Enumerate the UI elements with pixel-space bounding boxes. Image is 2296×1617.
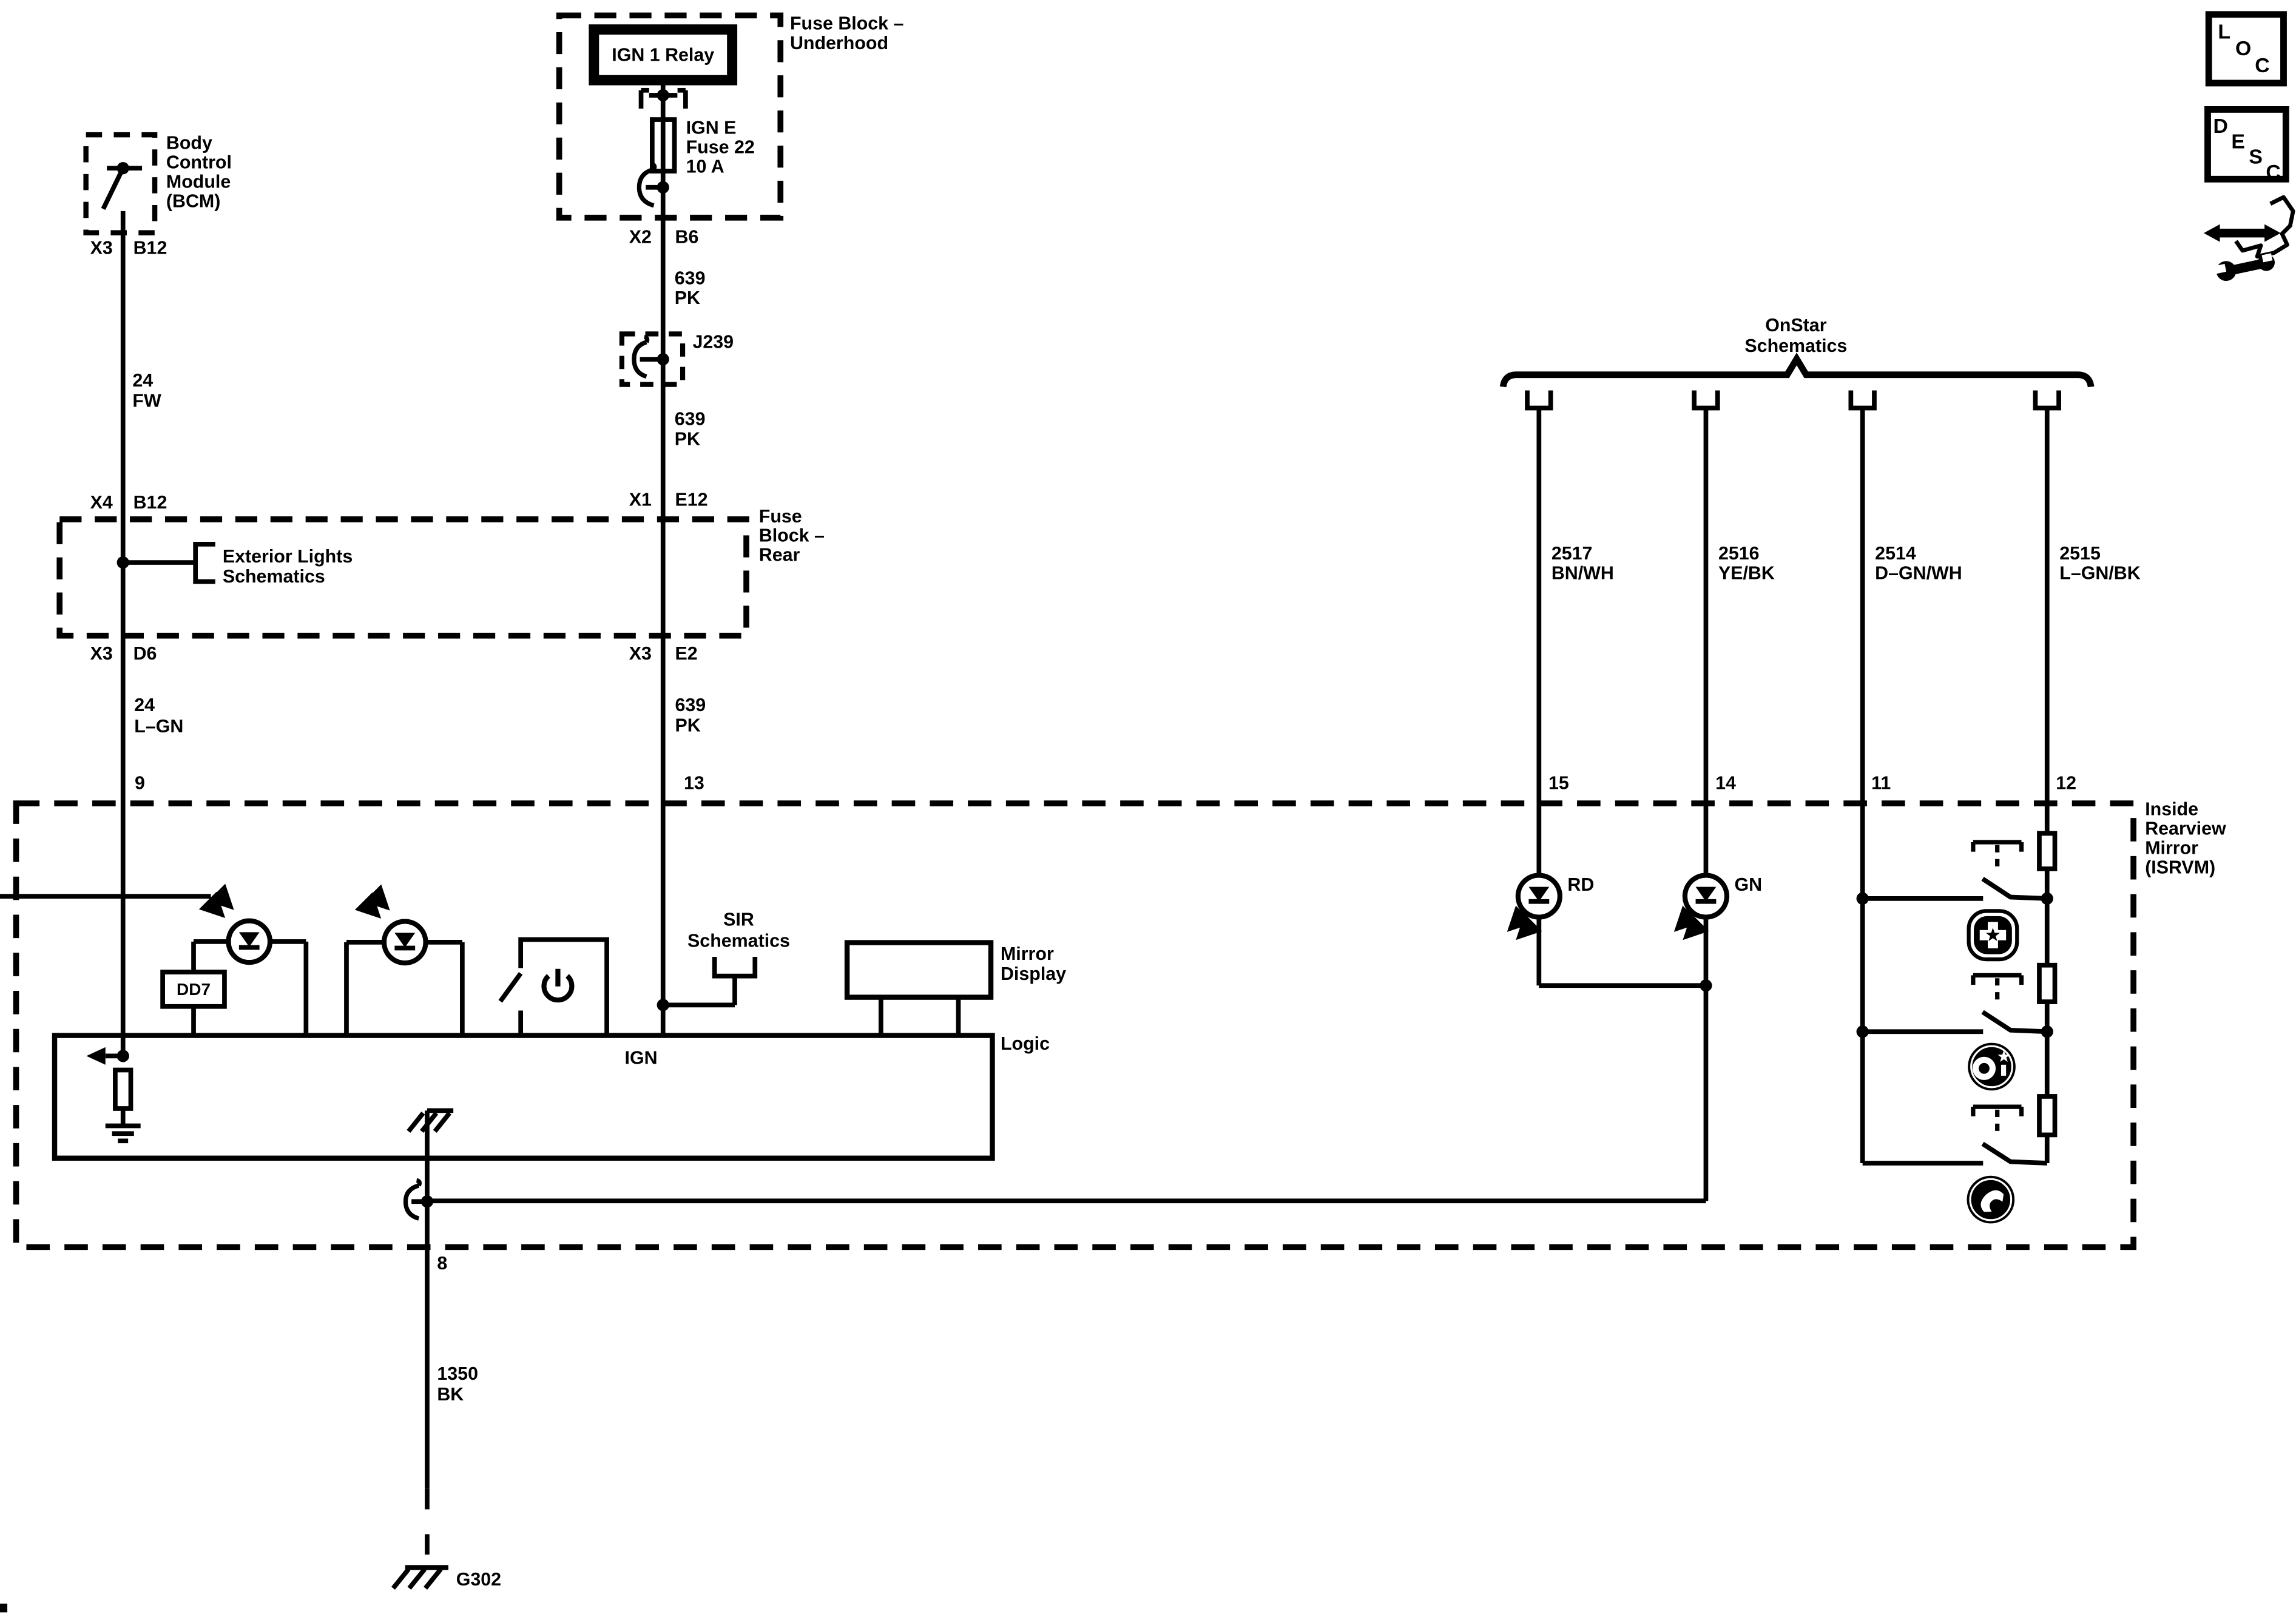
loc-letter-l: L xyxy=(2218,20,2230,43)
switch-blade-1 xyxy=(1983,879,2047,899)
isrvm-label-line1: Inside xyxy=(2145,799,2198,820)
fuse-label-line3: 10 A xyxy=(686,157,724,177)
loc-letter-c: C xyxy=(2255,54,2269,77)
bcm-terminal-id: B12 xyxy=(133,238,167,258)
term-e12: E12 xyxy=(675,489,708,510)
conn-x1: X1 xyxy=(629,489,652,510)
splice-j239: J239 xyxy=(622,332,734,385)
schematic-ref-bracket xyxy=(195,544,215,582)
gnd-wire-color: BK xyxy=(437,1384,464,1405)
term-d6: D6 xyxy=(133,643,157,664)
wire-639-color-1: PK xyxy=(675,288,700,308)
pin-8: 8 xyxy=(437,1253,447,1274)
terminal-u-4 xyxy=(2035,391,2059,408)
fuse-label-line2: Fuse 22 xyxy=(686,137,755,157)
j239-clip-icon xyxy=(634,337,647,376)
power-icon xyxy=(544,969,572,1000)
underhood-label-line2: Underhood xyxy=(790,33,888,53)
rear-label-line2: Block – xyxy=(759,525,825,546)
fuse-label-line1: IGN E xyxy=(686,117,737,138)
mirror-display-box xyxy=(847,943,991,998)
sir-bracket xyxy=(715,957,755,976)
exterior-lights-ref-line2[interactable]: Schematics xyxy=(223,566,325,587)
scan-artifact-dot xyxy=(0,1604,7,1612)
resistor-icon xyxy=(115,1070,131,1109)
sir-ref-line2[interactable]: Schematics xyxy=(687,930,790,951)
isrvm-dashed-box xyxy=(16,803,2134,1247)
onstar-title-line2[interactable]: Schematics xyxy=(1744,336,1847,356)
mirror-display-label-line2: Display xyxy=(1001,964,1066,984)
pin-15: 15 xyxy=(1548,772,1569,793)
rear-label-line3: Rear xyxy=(759,544,800,565)
term-b6: B6 xyxy=(675,226,699,247)
isrvm-label-line2: Rearview xyxy=(2145,819,2226,839)
photodiode-1: DD7 xyxy=(0,894,306,1036)
wire-2515-color: L–GN/BK xyxy=(2059,562,2140,583)
photodiode-2 xyxy=(346,895,462,1036)
underhood-label-line1: Fuse Block – xyxy=(790,13,903,34)
wire1-gauge: 24 xyxy=(132,370,153,391)
resistor-3 xyxy=(2039,1096,2055,1135)
pin-13: 13 xyxy=(684,772,704,793)
onstar-button-block xyxy=(1857,834,2055,1224)
onstar-title-line1[interactable]: OnStar xyxy=(1765,315,1826,336)
mirror-display: Mirror Display xyxy=(847,943,1066,1036)
switch-blade-3 xyxy=(1983,1144,2047,1163)
loc-button[interactable]: L O C xyxy=(2209,15,2283,83)
onstar-logo-button-icon[interactable] xyxy=(1968,1043,2016,1091)
phone-button-branch xyxy=(1863,1107,2047,1223)
wrench-icon xyxy=(2213,251,2277,283)
exterior-lights-ref-line1[interactable]: Exterior Lights xyxy=(223,546,353,567)
switch-blade-2 xyxy=(1983,1012,2047,1031)
term-e2: E2 xyxy=(675,643,698,664)
wire-2516-id: 2516 xyxy=(1718,543,1760,564)
wiring-diagram-isrvm-onstar: Body Control Module (BCM) X3 B12 24 FW X… xyxy=(0,0,2296,1617)
desc-button[interactable]: D E S C xyxy=(2207,109,2286,184)
sir-branch: SIR Schematics xyxy=(657,909,790,1011)
terminal-u-3 xyxy=(1851,391,1874,408)
bcm-connector-id: X3 xyxy=(90,238,113,258)
corner-buttons: L O C D E S C xyxy=(2204,15,2293,283)
pin-11: 11 xyxy=(1871,772,1891,793)
logic-module: Logic IGN DD7 xyxy=(0,894,1066,1158)
rear-label-line1: Fuse xyxy=(759,506,802,527)
onstar-button-branch xyxy=(1857,975,2053,1090)
logic-box xyxy=(55,1036,992,1158)
signal-arrow-icon xyxy=(86,1047,105,1065)
resistor-1 xyxy=(2039,834,2055,869)
bcm-label-line4: (BCM) xyxy=(166,191,220,212)
pin-14: 14 xyxy=(1715,772,1736,793)
bcm-driver-switch-icon xyxy=(103,162,142,209)
wire-639-gauge-2: 639 xyxy=(675,408,706,429)
conn-x3-left: X3 xyxy=(90,643,113,664)
signal-ground-icon xyxy=(106,1126,141,1141)
terminal-u-1 xyxy=(1527,391,1551,408)
wire-2517-color: BN/WH xyxy=(1551,562,1614,583)
dd7-label: DD7 xyxy=(177,980,211,999)
bcm-label-line2: Control xyxy=(166,152,232,173)
emergency-button-branch xyxy=(1857,842,2053,959)
desc-letter-s: S xyxy=(2249,146,2263,169)
led-rd-label: RD xyxy=(1567,874,1594,895)
pin-12: 12 xyxy=(2056,772,2076,793)
case-ground-icon xyxy=(408,1110,453,1158)
wire2-color: L–GN xyxy=(134,716,183,737)
bcm-label-line3: Module xyxy=(166,172,231,192)
led-gn-label: GN xyxy=(1735,874,1763,895)
emergency-button-icon[interactable] xyxy=(1969,911,2017,959)
g302-label: G302 xyxy=(456,1569,501,1590)
desc-letter-c: C xyxy=(2266,161,2280,184)
conn-x4: X4 xyxy=(90,492,113,513)
conn-x3-center: X3 xyxy=(629,643,652,664)
isrvm-label-line3: Mirror xyxy=(2145,837,2198,858)
isrvm-label-line4: (ISRVM) xyxy=(2145,857,2215,877)
conn-x2: X2 xyxy=(629,226,652,247)
wire1-color: FW xyxy=(132,390,161,411)
power-switch xyxy=(501,939,607,1035)
bcm-module: Body Control Module (BCM) X3 B12 xyxy=(86,132,232,258)
pin-9: 9 xyxy=(135,772,145,793)
input-node xyxy=(86,1047,140,1141)
wire-639-gauge-3: 639 xyxy=(675,695,706,715)
onstar-schematics-header: OnStar Schematics xyxy=(1503,315,2091,408)
wire-2517-id: 2517 xyxy=(1551,543,1593,564)
ign1-relay-label: IGN 1 Relay xyxy=(612,44,714,65)
wire2-gauge: 24 xyxy=(134,695,155,715)
fuse-block-rear: Fuse Block – Rear Exterior Lights Schema… xyxy=(59,506,825,636)
fuse-block-underhood: Fuse Block – Underhood IGN 1 Relay IGN E… xyxy=(559,13,904,248)
mirror-display-label-line1: Mirror xyxy=(1001,944,1054,964)
fuse-block-rear-box xyxy=(59,519,746,636)
led-gn: GN xyxy=(1676,874,1762,1201)
logic-label: Logic xyxy=(1001,1033,1050,1054)
wire-639-gauge-1: 639 xyxy=(675,268,706,289)
ign-input-label: IGN xyxy=(625,1048,658,1068)
wire-2514-color: D–GN/WH xyxy=(1875,562,1962,583)
bcm-dashed-box xyxy=(86,135,155,232)
ground-path: 8 1350 BK G302 xyxy=(393,1158,501,1590)
onstar-brace xyxy=(1503,359,2091,387)
bcm-label-line1: Body xyxy=(166,132,212,153)
sir-ref-line1[interactable]: SIR xyxy=(723,909,754,930)
desc-letter-e: E xyxy=(2231,130,2245,153)
wire-2516-color: YE/BK xyxy=(1718,562,1775,583)
loc-letter-o: O xyxy=(2235,37,2251,60)
chassis-ground-icon xyxy=(393,1568,448,1588)
term-b12: B12 xyxy=(133,492,167,513)
terminal-u-2 xyxy=(1694,391,1718,408)
switch-blade xyxy=(501,973,521,1001)
gnd-wire-gauge: 1350 xyxy=(437,1363,478,1384)
led-rd: RD xyxy=(1510,874,1594,985)
wire-639-color-2: PK xyxy=(675,429,700,450)
repair-instructions-icon[interactable] xyxy=(2204,197,2293,283)
resistor-2 xyxy=(2039,965,2055,1002)
wire-639-color-3: PK xyxy=(675,715,701,735)
j239-label: J239 xyxy=(692,332,734,353)
desc-letter-d: D xyxy=(2213,115,2228,138)
wire-2515-id: 2515 xyxy=(2059,543,2101,564)
phone-button-icon[interactable] xyxy=(1967,1176,2014,1224)
wire-2514-id: 2514 xyxy=(1875,543,1916,564)
